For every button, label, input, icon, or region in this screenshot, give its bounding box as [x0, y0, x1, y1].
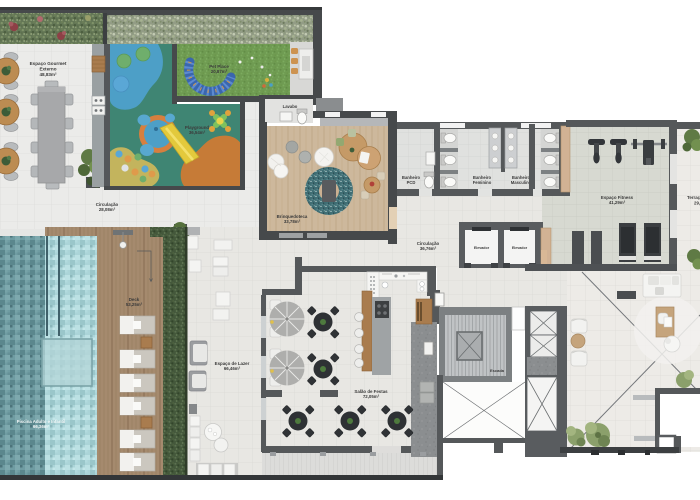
svg-text:Circulação28,08m²: Circulação28,08m²: [96, 202, 119, 212]
svg-text:Pet Place20,87m²: Pet Place20,87m²: [209, 64, 229, 74]
svg-text:BanheiroMasculino: BanheiroMasculino: [511, 175, 532, 185]
svg-text:29,9: 29,9: [694, 201, 700, 206]
svg-text:Lavabo: Lavabo: [283, 104, 298, 109]
svg-text:Escada: Escada: [490, 368, 505, 373]
svg-text:BanheiroFeminino: BanheiroFeminino: [473, 175, 492, 185]
svg-text:Elevador: Elevador: [474, 246, 490, 250]
svg-text:Elevador: Elevador: [512, 246, 528, 250]
svg-text:Circulação36,76m²: Circulação36,76m²: [417, 241, 440, 251]
svg-text:Terraço: Terraço: [687, 195, 700, 200]
